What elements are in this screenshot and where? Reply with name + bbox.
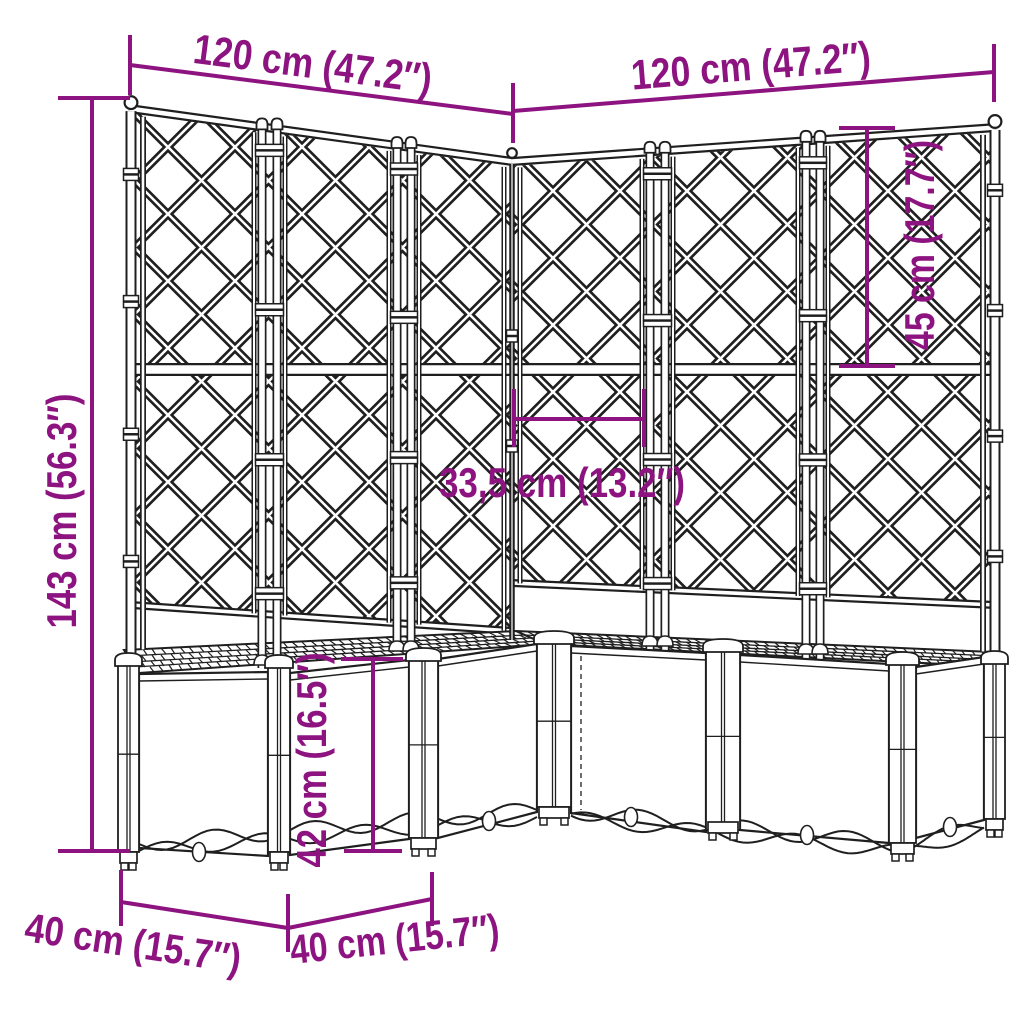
svg-text:143 cm (56.3″): 143 cm (56.3″)	[38, 394, 85, 629]
svg-text:45 cm (17.7″): 45 cm (17.7″)	[896, 140, 943, 350]
svg-text:42 cm (16.5″): 42 cm (16.5″)	[288, 653, 335, 868]
svg-text:33,5 cm (13.2″): 33,5 cm (13.2″)	[439, 459, 685, 506]
